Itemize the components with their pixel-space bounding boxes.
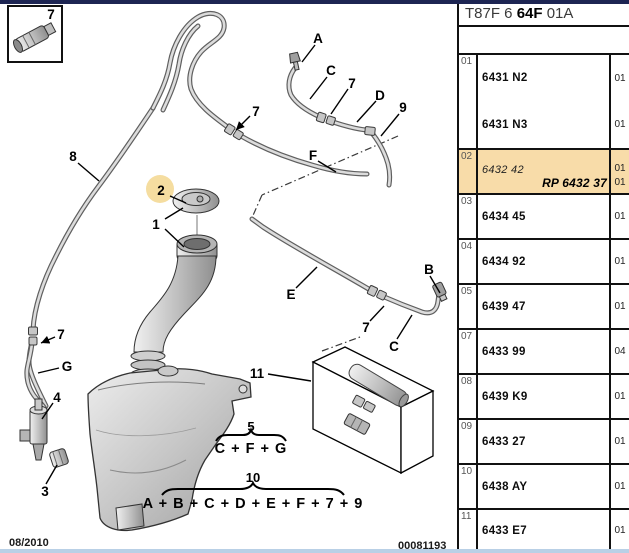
callout-1: 1 [152,217,160,232]
diagram-svg: A C 7 D 9 F 8 7 2 1 E B 7 C 7 G 4 3 11 7 [0,0,457,553]
callout-7: 7 [348,76,356,91]
callout-E: E [286,287,295,302]
parts-catalog-page: A C 7 D 9 F 8 7 2 1 E B 7 C 7 G 4 3 11 7 [0,0,629,553]
brace [216,430,286,441]
row-ref: 01 [459,55,478,148]
formula-5-expr: C + F + G [215,441,288,457]
part-number: 6431 N2 [482,72,609,84]
part-qty: 01 [614,211,625,222]
part-number: 6438 AY [482,481,609,493]
callout-9: 9 [399,100,407,115]
row-ref: 03 [459,195,478,238]
part-number: 6433 99 [482,346,609,358]
panel-gap [459,27,629,53]
callout-7: 7 [57,327,65,342]
table-row-highlighted[interactable]: 02 6432 42 RP 6432 37 01 01 [459,148,629,193]
part-qty: 01 [614,176,625,190]
row-ref: 04 [459,240,478,283]
exploded-diagram: A C 7 D 9 F 8 7 2 1 E B 7 C 7 G 4 3 11 7 [0,0,457,553]
callout-F: F [309,148,317,163]
row-ref: 08 [459,375,478,418]
callout-11: 11 [250,366,265,381]
hose-connector-icon [29,327,38,345]
callout-8: 8 [69,149,77,164]
row-ref: 10 [459,465,478,508]
hose-connector-icon [367,285,387,301]
part-number: 6439 47 [482,301,609,313]
code-family: 64F [517,5,543,22]
part-number-rp: RP 6432 37 [542,176,609,190]
hose-connector-icon [316,112,336,126]
part-qty: 01 [614,256,625,267]
washer-jet-a [289,52,302,71]
washer-hoses [27,13,439,409]
part-qty: 01 [614,391,625,402]
table-row[interactable]: 05 6439 47 01 [459,283,629,328]
part-number: 6431 N3 [482,119,609,131]
row-ref: 11 [459,510,478,551]
formula-10-expr: A + B + C + D + E + F + 7 + 9 [143,496,364,512]
table-row[interactable]: 09 6433 27 01 [459,418,629,463]
part-number: 6432 42 [482,164,609,176]
part-qty: 01 [614,73,625,84]
table-row[interactable]: 01 6431 N2 6431 N3 01 01 [459,53,629,148]
callout-4: 4 [53,390,61,405]
table-row[interactable]: 07 6433 99 04 [459,328,629,373]
row-ref: 02 [459,150,478,193]
part-qty: 04 [614,346,625,357]
callout-B: B [424,262,434,277]
reservoir-cap [173,189,219,236]
part-number: 6434 45 [482,211,609,223]
callout-C: C [326,63,336,78]
row-ref: 09 [459,420,478,463]
callout-G: G [62,359,73,374]
pump-grommet [49,448,69,468]
part-qty: 01 [614,525,625,536]
callout-C: C [389,339,399,354]
washer-pump [20,399,47,460]
callout-D: D [375,88,385,103]
row-ref: 05 [459,285,478,328]
hose-junction-icon [365,126,376,135]
part-number: 6433 27 [482,436,609,448]
bottom-bar [0,549,629,553]
callout-7-inset: 7 [47,7,55,22]
hose-connector-icon [224,123,244,140]
code-suffix: 01A [543,5,574,22]
table-row[interactable]: 04 6434 92 01 [459,238,629,283]
part-number: 6439 K9 [482,391,609,403]
part-qty: 01 [614,162,625,176]
part-number: 6433 E7 [482,525,609,537]
callout-7: 7 [252,104,260,119]
table-row[interactable]: 11 6433 E7 01 [459,508,629,553]
part-qty: 01 [614,119,625,130]
part-qty: 01 [614,301,625,312]
parts-table: 01 6431 N2 6431 N3 01 01 02 6432 42 RP 6… [459,53,629,553]
callout-7: 7 [362,320,370,335]
table-row[interactable]: 03 6434 45 01 [459,193,629,238]
part-qty: 01 [614,481,625,492]
code-prefix: T87F 6 [465,5,517,22]
callout-2: 2 [157,183,165,198]
part-number: 6434 92 [482,256,609,268]
callout-3: 3 [41,484,49,499]
callout-A: A [313,31,323,46]
parts-panel: T87F 6 64F 01A 01 6431 N2 6431 N3 01 01 … [457,4,629,553]
row-ref: 07 [459,330,478,373]
part-qty: 01 [614,436,625,447]
catalog-code: T87F 6 64F 01A [459,4,629,27]
table-row[interactable]: 08 6439 K9 01 [459,373,629,418]
footer-date: 08/2010 [9,537,49,549]
repair-kit-box [313,347,433,473]
table-row[interactable]: 10 6438 AY 01 [459,463,629,508]
